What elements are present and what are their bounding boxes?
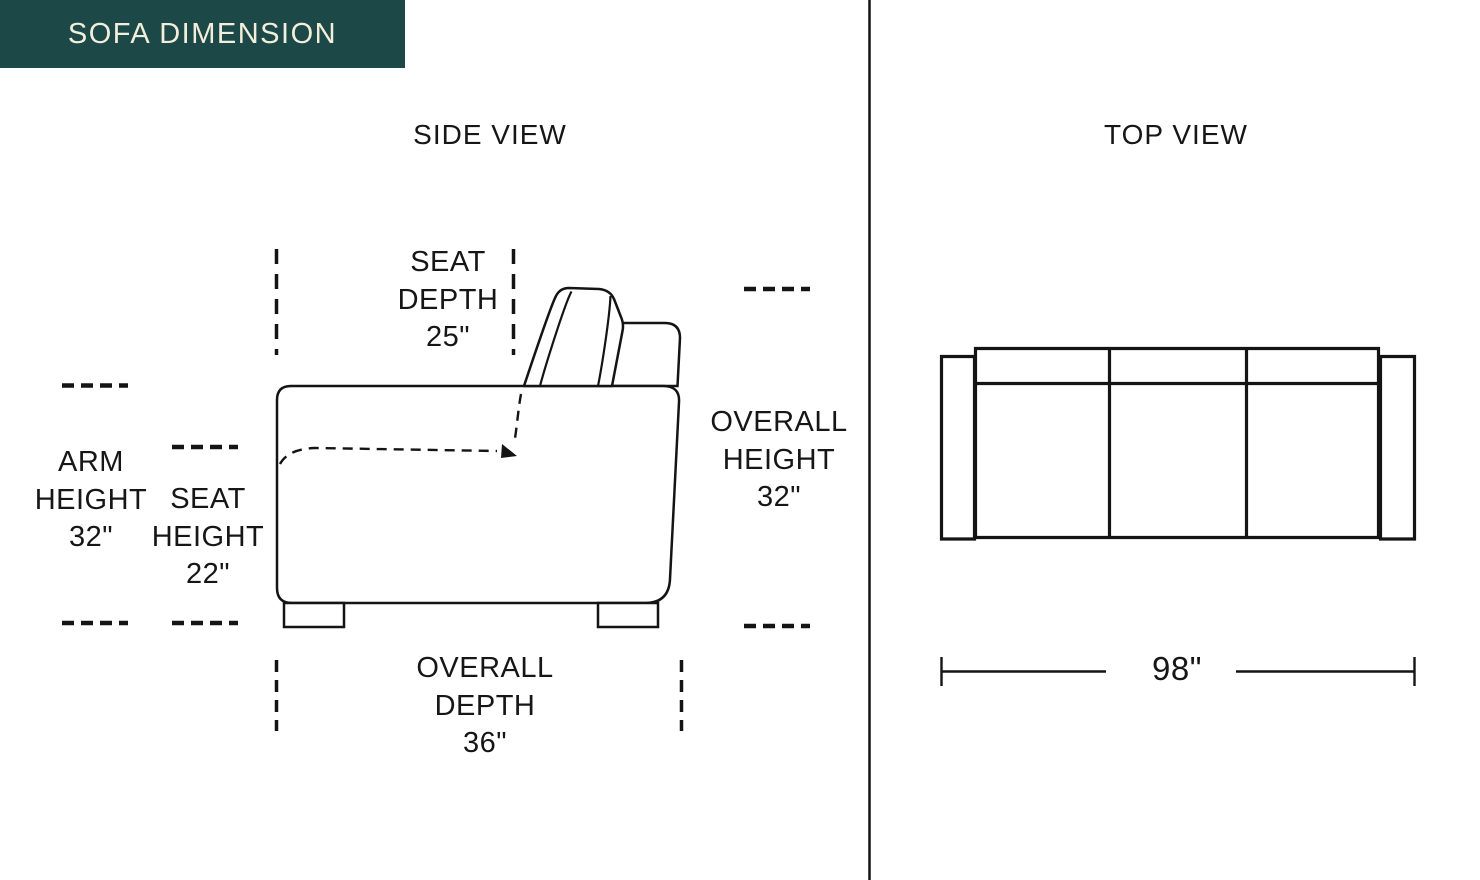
seat-height-value: 22" — [118, 556, 298, 594]
overall-height-label: OVERALL HEIGHT 32" — [679, 404, 879, 517]
overall-depth-label: OVERALL DEPTH 36" — [385, 650, 585, 763]
seat-depth-value: 25" — [348, 319, 548, 357]
overall-depth-value: 36" — [385, 725, 585, 763]
title-badge: SOFA DIMENSION — [0, 0, 405, 68]
overall-height-line2: HEIGHT — [679, 442, 879, 480]
title-text: SOFA DIMENSION — [68, 18, 337, 51]
sofa-foot-back — [598, 603, 658, 627]
overall-width-label: 98" — [1077, 650, 1277, 687]
overall-height-line1: OVERALL — [679, 404, 879, 442]
overall-height-value: 32" — [679, 479, 879, 517]
overall-depth-line2: DEPTH — [385, 688, 585, 726]
sofa-foot-front — [284, 603, 344, 627]
seat-height-label: SEAT HEIGHT 22" — [118, 481, 298, 594]
seat-depth-line2: DEPTH — [348, 282, 548, 320]
arm-height-line1: ARM — [1, 444, 181, 482]
sofa-body — [277, 386, 679, 603]
side-view-heading: SIDE VIEW — [340, 119, 640, 151]
top-view-arm-left — [942, 357, 975, 540]
sofa-dimension-diagram: SOFA DIMENSION SIDE VIEW TOP VIEW SEAT D… — [0, 0, 1480, 880]
top-view-arm-right — [1381, 357, 1415, 540]
seat-height-line1: SEAT — [118, 481, 298, 519]
seat-depth-label: SEAT DEPTH 25" — [348, 244, 548, 357]
top-view-heading: TOP VIEW — [1026, 119, 1326, 151]
overall-depth-line1: OVERALL — [385, 650, 585, 688]
overall-width-value: 98" — [1152, 650, 1202, 687]
seat-depth-line1: SEAT — [348, 244, 548, 282]
seat-height-line2: HEIGHT — [118, 519, 298, 557]
top-view-body — [976, 349, 1379, 538]
